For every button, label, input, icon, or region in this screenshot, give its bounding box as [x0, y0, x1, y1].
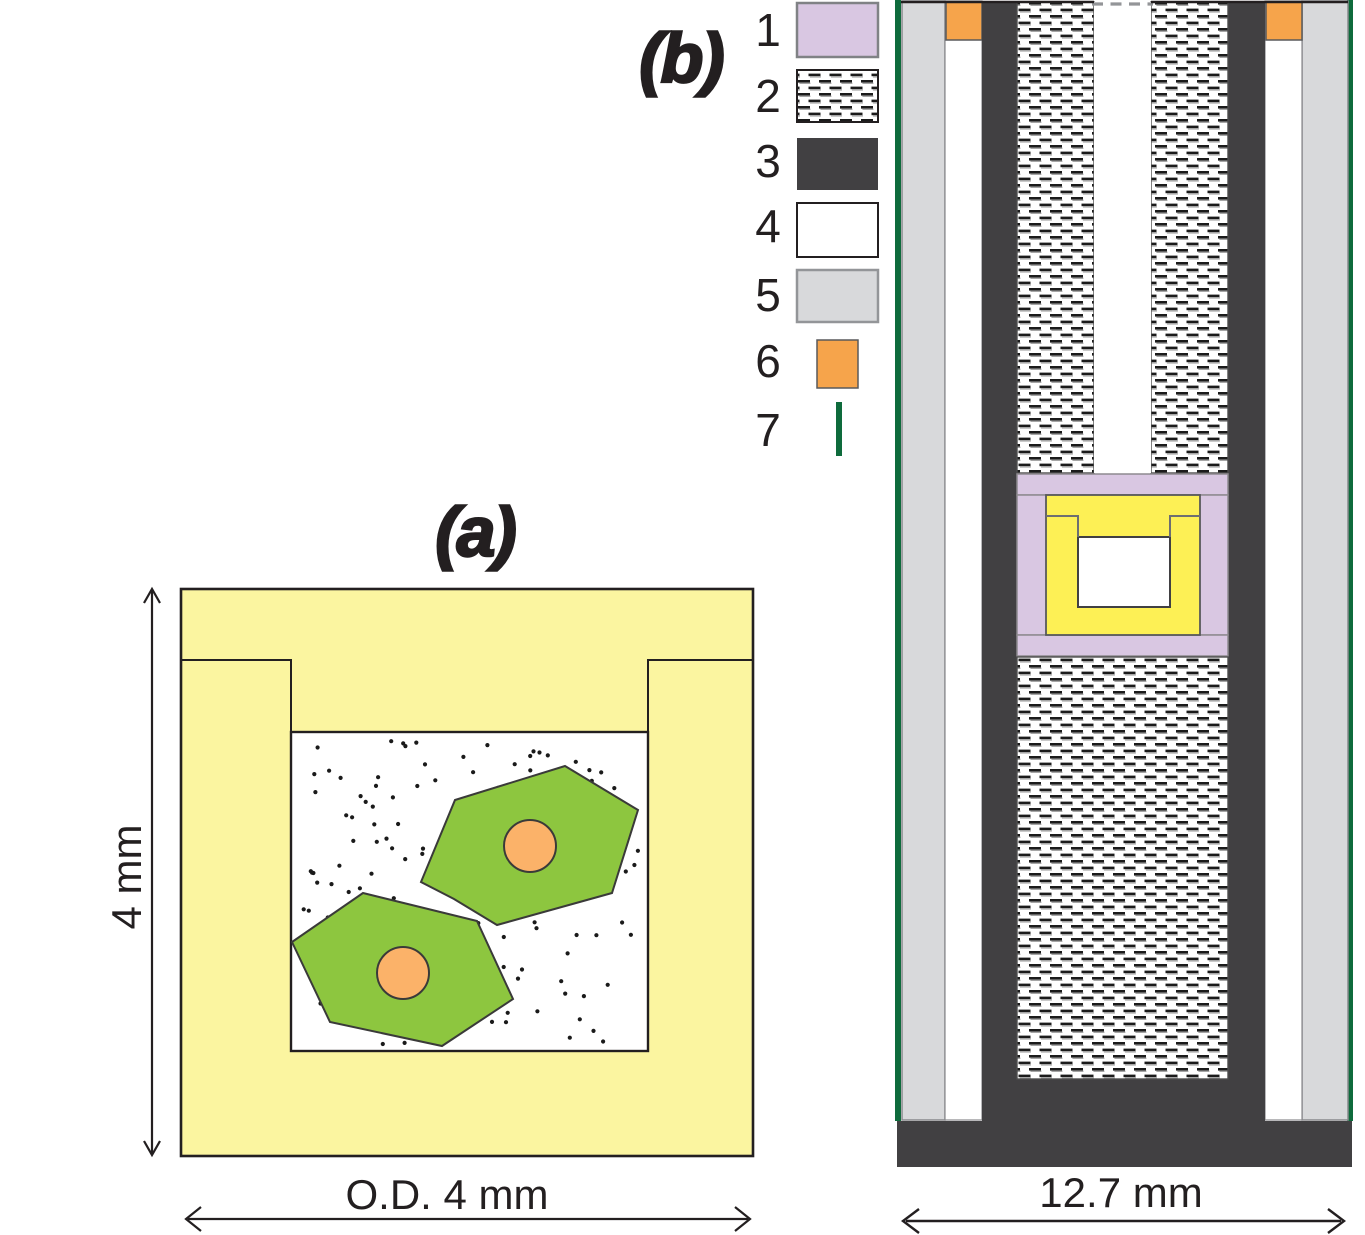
legend-label-6: 6	[755, 334, 781, 388]
legend-swatch-6-orange	[817, 340, 858, 388]
orange-plug-left	[946, 2, 982, 40]
holder-wall-right	[1198, 495, 1228, 635]
figure-graphics	[0, 0, 1365, 1235]
container-base	[897, 1121, 1352, 1167]
outer-wall-left	[902, 1, 945, 1120]
panel-b-assembly	[895, 0, 1353, 1233]
holder-lid	[1017, 474, 1228, 495]
packing-column-right	[1151, 2, 1228, 473]
seed-core-lower	[377, 947, 429, 999]
container-wall-left	[982, 1, 1017, 1121]
legend-swatch-5-lightgray	[797, 270, 878, 322]
legend-swatch-7-greenline	[836, 402, 842, 456]
gap-column-left	[945, 1, 982, 1120]
inner-crucible-cavity	[1078, 537, 1170, 607]
legend-label-5: 5	[755, 268, 781, 322]
legend-label-7: 7	[755, 403, 781, 457]
outer-wall-right	[1302, 1, 1348, 1120]
legend-label-2: 2	[755, 69, 781, 123]
orange-plug-right	[1266, 2, 1302, 40]
gap-column-right	[1265, 1, 1302, 1120]
panel-b-width-label: 12.7 mm	[1039, 1169, 1202, 1217]
packing-block-lower	[1017, 657, 1228, 1079]
container-wall-right	[1228, 1, 1265, 1121]
container-bottom	[982, 1079, 1265, 1123]
thermo-line-left	[895, 0, 901, 1121]
legend-swatch-1-lavender	[797, 3, 878, 57]
holder-bottom	[1017, 635, 1228, 656]
holder-wall-left	[1017, 495, 1047, 635]
panel-a-crucible	[144, 589, 753, 1231]
legend-swatch-2-dashed	[797, 70, 878, 122]
figure-canvas: (a) (b) 1 2 3 4 5 6 7 4 mm O.D. 4 mm 12.…	[0, 0, 1365, 1235]
legend-label-3: 3	[755, 134, 781, 188]
seed-core-upper	[504, 820, 556, 872]
panel-b-title: (b)	[639, 18, 722, 98]
center-bore	[1094, 2, 1151, 473]
packing-column-left	[1017, 2, 1094, 473]
legend-swatch-4-white	[797, 203, 878, 257]
legend-label-4: 4	[755, 199, 781, 253]
legend-swatch-3-darkgray	[797, 138, 878, 190]
legend-swatches	[797, 3, 878, 456]
panel-a-width-label: O.D. 4 mm	[345, 1171, 548, 1219]
legend-label-1: 1	[755, 3, 781, 57]
panel-a-height-label: 4 mm	[103, 825, 151, 930]
panel-a-title: (a)	[435, 492, 515, 572]
